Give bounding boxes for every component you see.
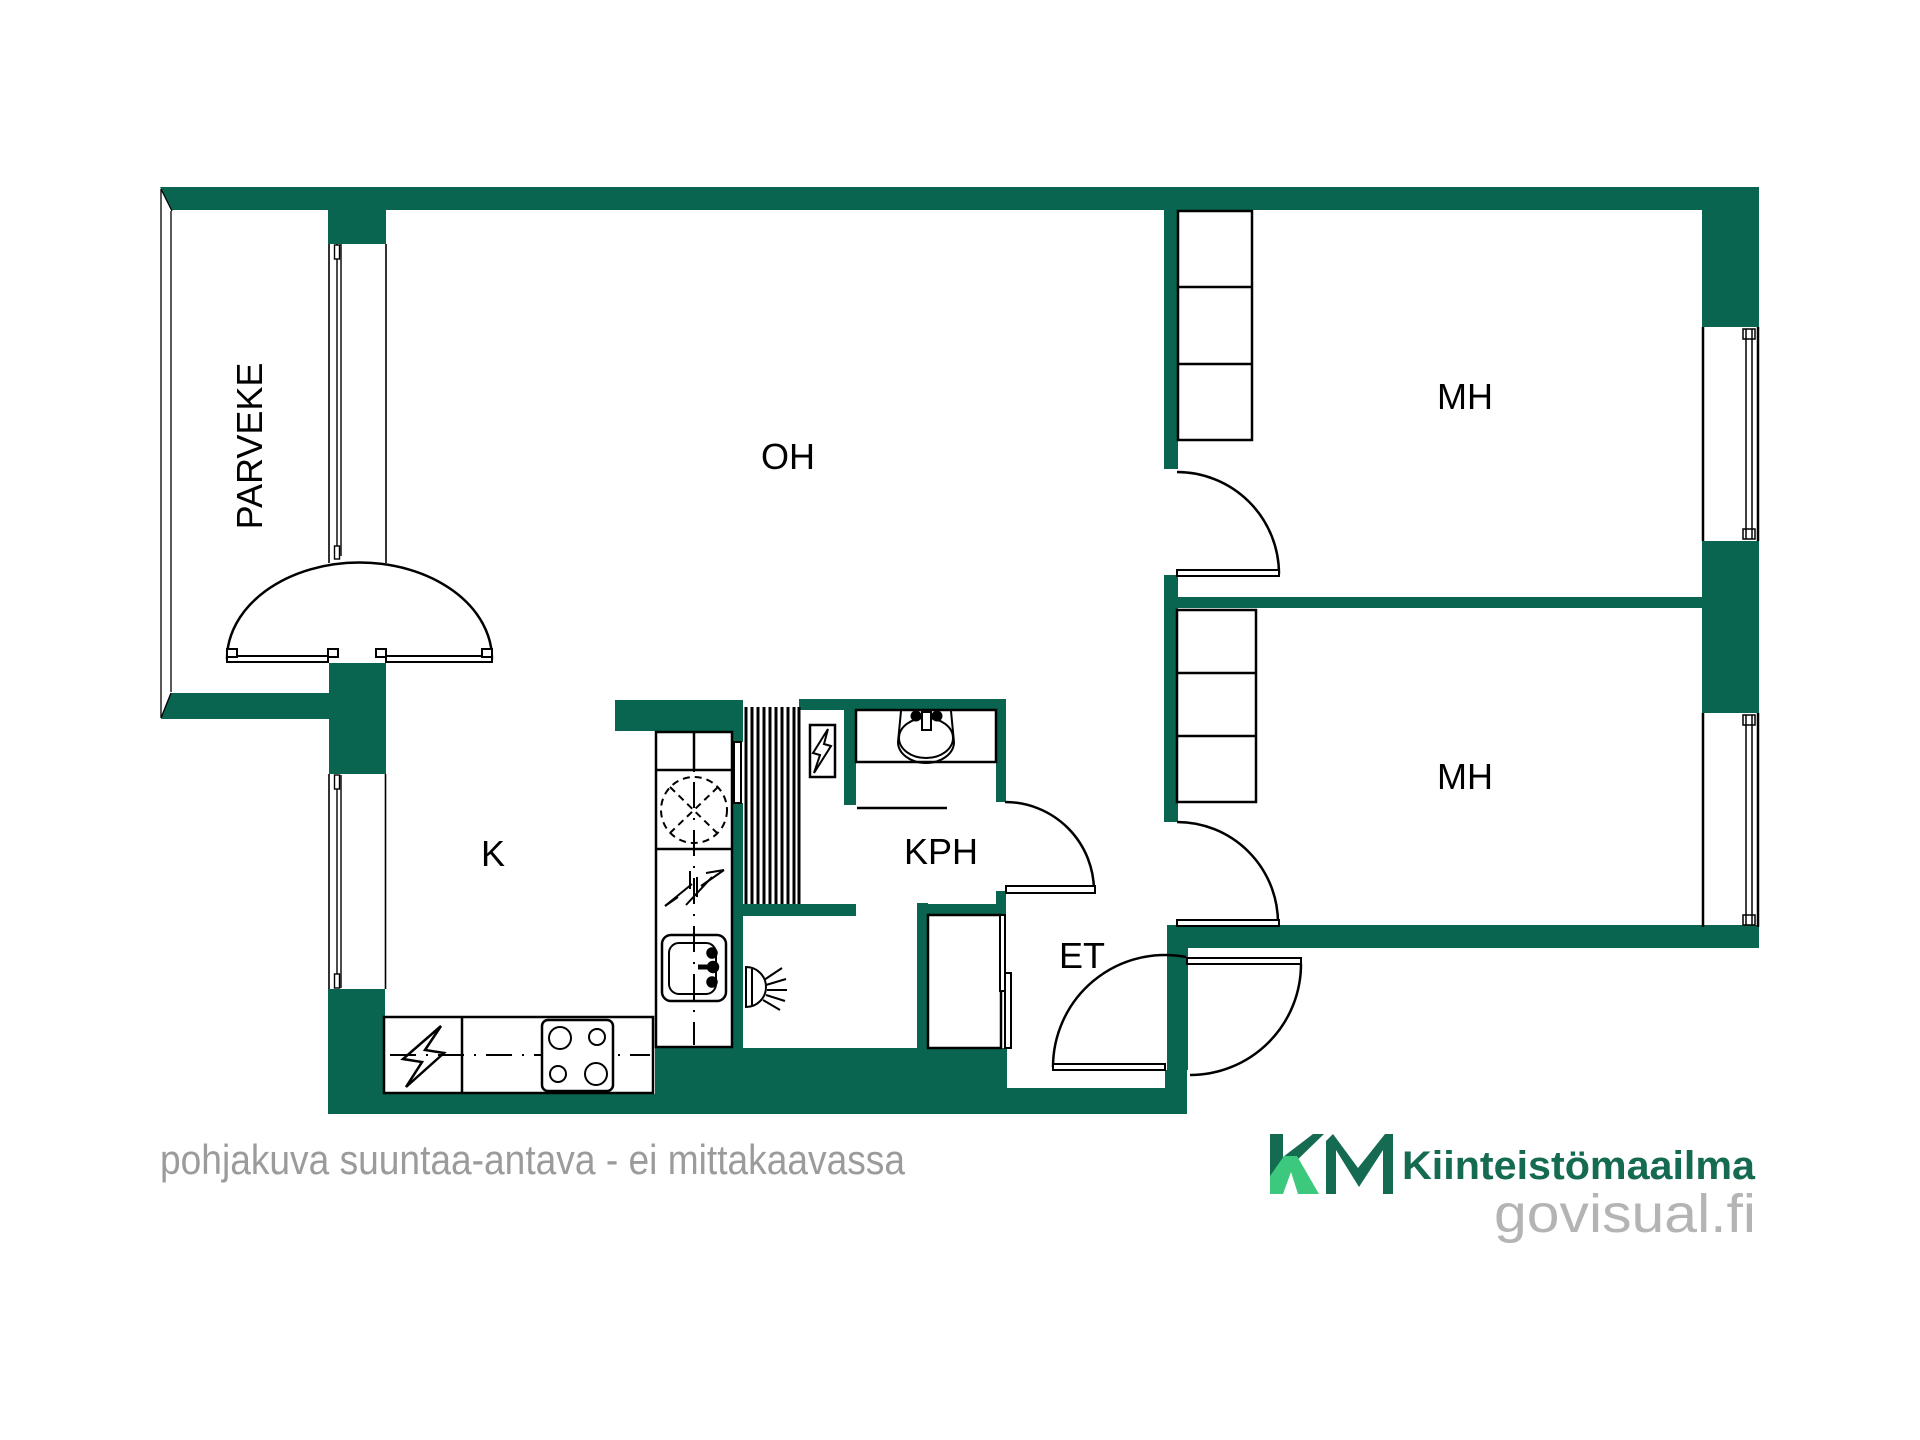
svg-text:Kiinteistömaailma: Kiinteistömaailma: [1402, 1144, 1756, 1188]
svg-text:ET: ET: [1059, 935, 1105, 976]
svg-text:pohjakuva suuntaa-antava - ei: pohjakuva suuntaa-antava - ei mittakaava…: [160, 1136, 906, 1183]
svg-text:PARVEKE: PARVEKE: [229, 363, 270, 530]
svg-text:OH: OH: [761, 436, 815, 477]
svg-text:govisual.fi: govisual.fi: [1494, 1184, 1756, 1244]
svg-text:K: K: [481, 833, 505, 874]
svg-text:KPH: KPH: [904, 831, 978, 872]
svg-text:MH: MH: [1437, 376, 1493, 417]
svg-text:MH: MH: [1437, 756, 1493, 797]
